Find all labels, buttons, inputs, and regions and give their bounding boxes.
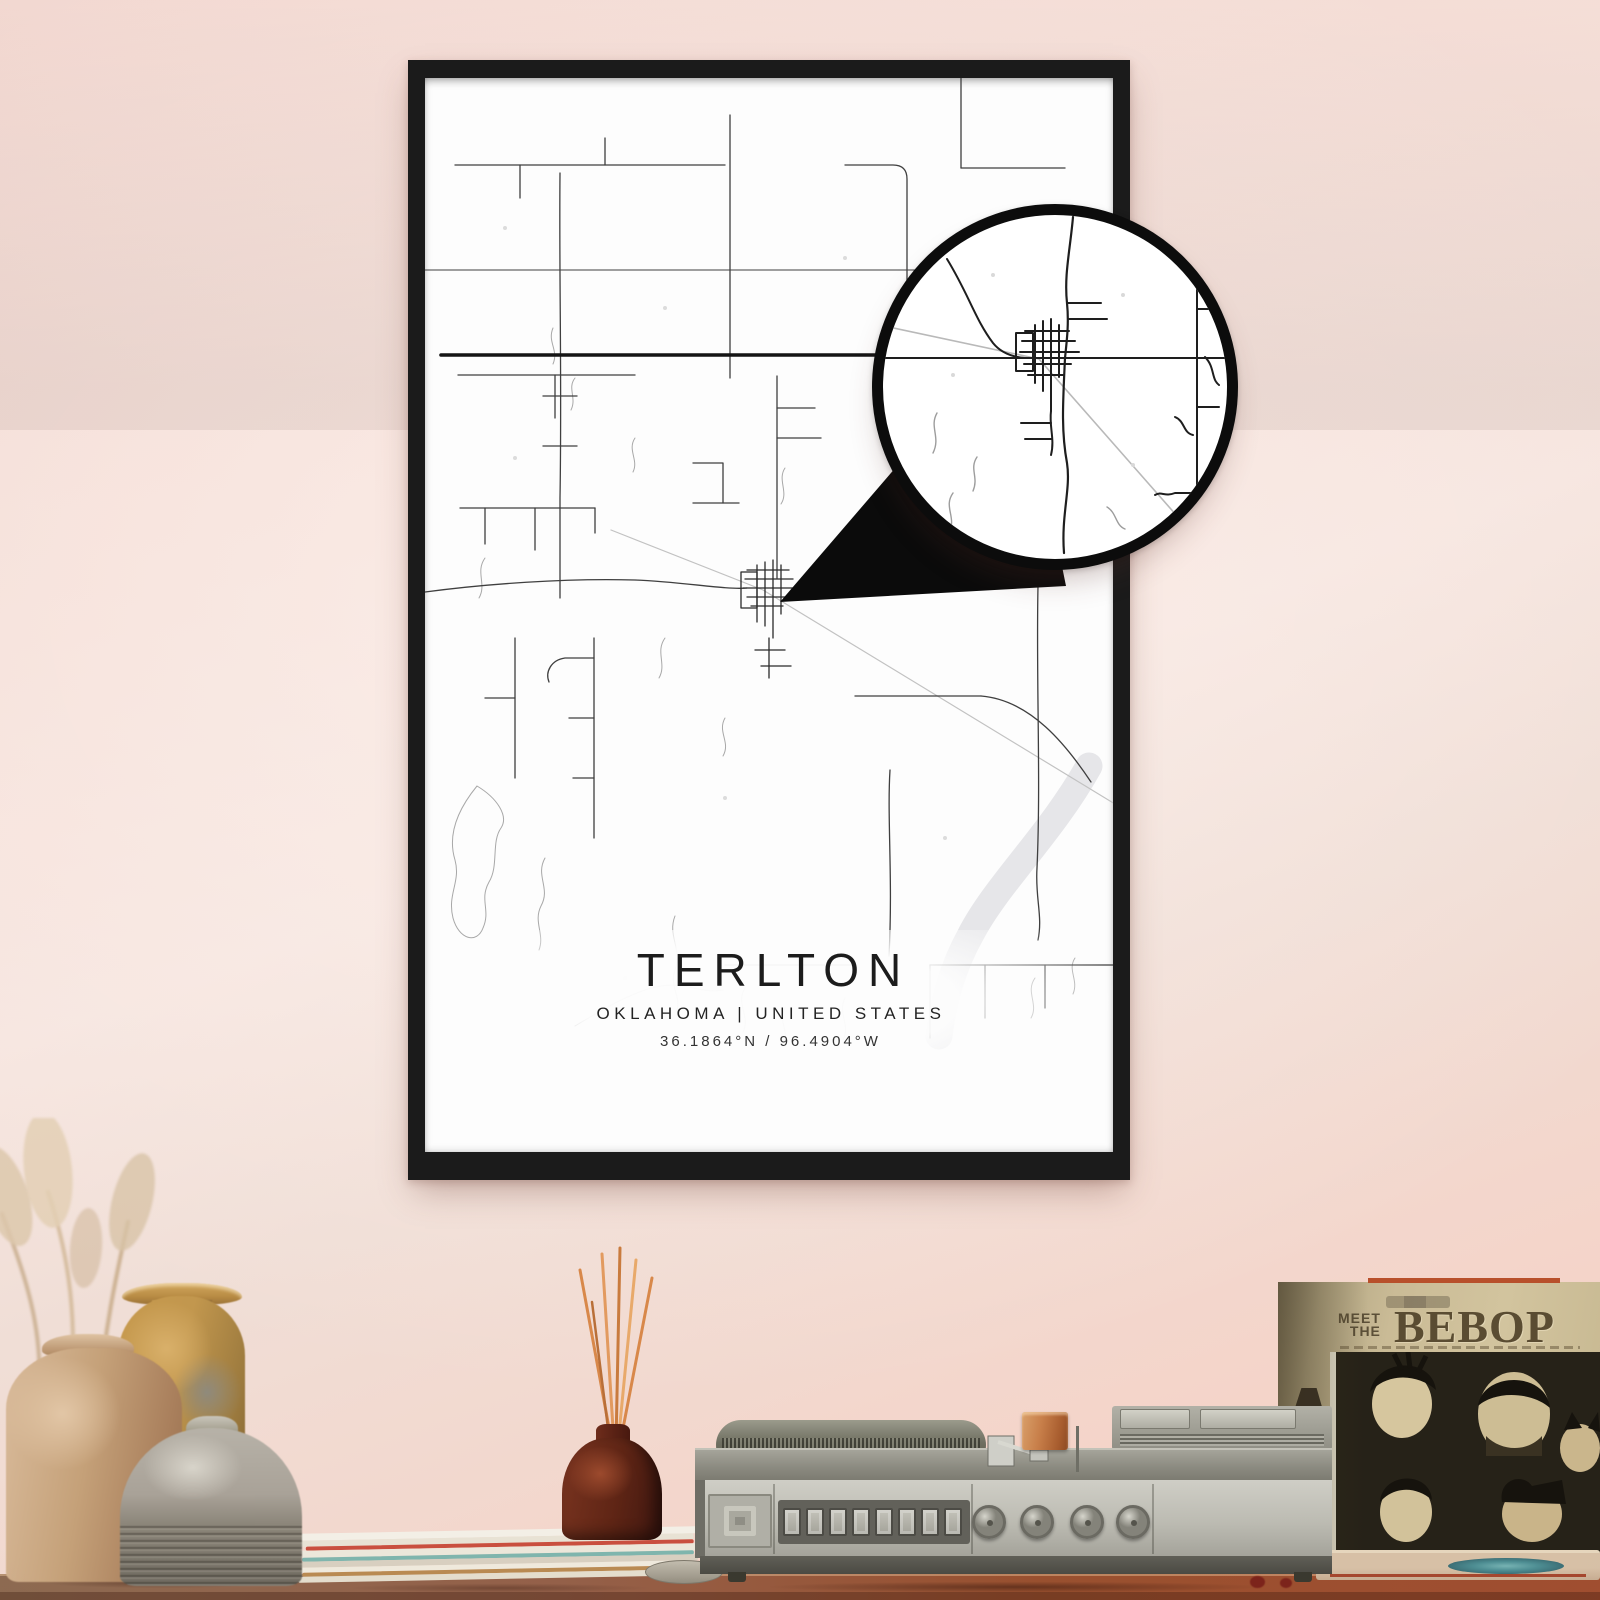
poster-coordinates: 36.1864°N / 96.4904°W bbox=[425, 1033, 1113, 1050]
room-scene: TERLTON OKLAHOMA | UNITED STATES 36.1864… bbox=[0, 0, 1600, 1600]
module-slats bbox=[1120, 1434, 1324, 1446]
flat-record-sleeve bbox=[1316, 1550, 1600, 1580]
poster-caption-block: TERLTON OKLAHOMA | UNITED STATES 36.1864… bbox=[425, 930, 1113, 1090]
magnifier-detail-circle bbox=[872, 204, 1238, 570]
flat-sleeve-accent bbox=[1330, 1574, 1586, 1577]
module-tab bbox=[1200, 1409, 1296, 1429]
preset-button bbox=[852, 1508, 870, 1536]
panel-separator bbox=[773, 1484, 775, 1554]
power-button-plate bbox=[708, 1494, 772, 1548]
teal-vinyl-disc bbox=[1448, 1558, 1564, 1574]
antenna-rod bbox=[1076, 1426, 1079, 1472]
preset-button bbox=[944, 1508, 962, 1536]
tone-knob bbox=[1020, 1505, 1054, 1539]
preset-button bbox=[898, 1508, 916, 1536]
volume-knob bbox=[972, 1505, 1006, 1539]
preset-button bbox=[783, 1508, 801, 1536]
module-tab bbox=[1120, 1409, 1190, 1429]
poster-subtitle: OKLAHOMA | UNITED STATES bbox=[425, 1004, 1113, 1024]
diffuser-reeds bbox=[540, 1230, 700, 1450]
balance-knob bbox=[1070, 1505, 1104, 1539]
preset-button-row bbox=[778, 1500, 970, 1544]
reed-diffuser-bottle bbox=[562, 1438, 662, 1540]
gray-vase-ribs bbox=[120, 1526, 302, 1586]
player-right-module bbox=[1112, 1406, 1332, 1450]
record-player-shadow bbox=[695, 1580, 1335, 1594]
gray-vase bbox=[120, 1428, 302, 1586]
preset-button bbox=[829, 1508, 847, 1536]
player-foot bbox=[1294, 1572, 1312, 1582]
preset-button bbox=[921, 1508, 939, 1536]
small-red-object bbox=[1250, 1576, 1265, 1588]
player-foot bbox=[728, 1572, 746, 1582]
record-player-base bbox=[700, 1556, 1332, 1574]
power-button bbox=[724, 1506, 756, 1536]
poster-title: TERLTON bbox=[425, 944, 1113, 996]
shelf-front-edge bbox=[0, 1592, 1600, 1600]
tuning-knob bbox=[1116, 1505, 1150, 1539]
preset-button bbox=[806, 1508, 824, 1536]
panel-separator bbox=[1152, 1484, 1154, 1554]
brass-lighter bbox=[1022, 1412, 1068, 1450]
magnified-map-detail bbox=[883, 215, 1227, 559]
sleeve-top-accent-line bbox=[1368, 1278, 1560, 1283]
small-red-object bbox=[1280, 1578, 1292, 1588]
preset-button bbox=[875, 1508, 893, 1536]
